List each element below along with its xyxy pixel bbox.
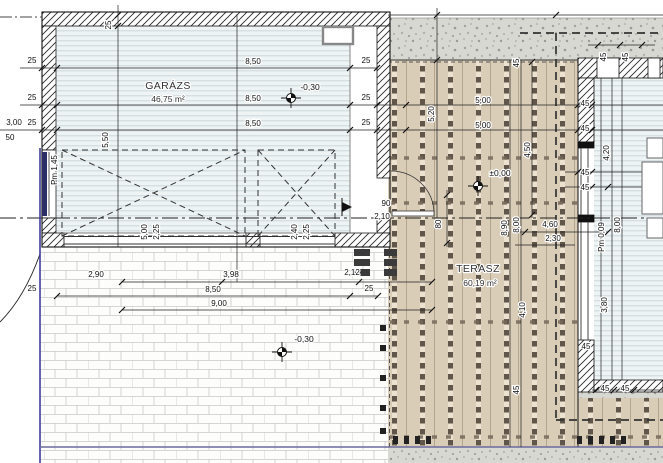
level-value-terrace: ±0,00 [489,168,510,178]
dimension-label: 2,10 [374,212,390,221]
dimension-label: 9,00 [211,299,227,308]
terrace-room-area: 60,19 m² [463,278,497,288]
dimension-label: 2,30 [545,234,561,243]
dimension-label: 3,00 [6,118,22,127]
level-value-garage: -0,30 [300,82,320,92]
dimension-label: 45 [601,384,610,393]
dimension-label: 4,10 [518,302,527,318]
dimension-label: 45 [581,168,590,177]
dimension-label: 8,50 [245,57,261,66]
dimension-label: 8,00 [512,217,521,233]
dimension-label: 2,12 [344,268,360,277]
garage-pier-right [335,233,390,247]
dimension-label: 25 [28,56,37,65]
terrace-deck [388,60,578,447]
dimension-label: 5,50 [101,132,110,148]
house-wall-sill [578,142,594,148]
dimension-label: 25 [28,93,37,102]
floor-plan-drawing: GARÁZS 46,75 m² TERASZ 60,19 m² -0,30 ±0… [0,0,663,463]
dimension-label: 8,50 [245,94,261,103]
door-leaf [392,211,434,216]
dimension-label: 25 [104,20,113,29]
dimension-label: 50 [6,133,15,142]
dimension-label: 5,00 [140,224,149,240]
dimension-label: 25 [28,118,37,127]
floor-plan-canvas: GARÁZS 46,75 m² TERASZ 60,19 m² -0,30 ±0… [0,0,663,463]
dimension-label: 45 [599,52,608,61]
dimension-label: 25 [28,284,37,293]
dimension-label: Pm 1,45 [50,155,59,185]
dimension-label: 45 [621,384,630,393]
dimension-label: 4,50 [523,142,532,158]
garage-floor [56,26,350,233]
dimension-label: Pm 0,09 [597,222,606,252]
chair [647,218,663,238]
dimension-label: 8,50 [205,285,221,294]
dimension-label: 45 [581,99,590,108]
dimension-label: 3,80 [600,297,609,313]
house-wall-mullion [578,215,594,222]
dimension-label: 25 [362,93,371,102]
dimension-label: 4,20 [602,145,611,161]
garage-vent-shaft [323,27,353,44]
terrace-room-label: TERASZ [456,263,500,275]
gravel-strip-bottom [388,447,663,463]
garage-wall-left-upper [42,26,56,150]
dimension-label: 45 [582,342,591,351]
dimension-label: 90 [382,199,391,208]
house-window-top-2 [648,58,660,78]
dimension-label: 45 [581,124,590,133]
dimension-label: 4,60 [542,220,558,229]
dimension-label: 2,40 [290,224,299,240]
dimension-label: 2,25 [152,224,161,240]
paving-area [40,247,388,463]
chair [647,138,663,158]
garage-room-label: GARÁZS [145,79,191,92]
dimension-label: 25 [362,56,371,65]
level-value-paving: -0,30 [294,334,314,344]
dimension-label: 5,00 [475,96,491,105]
dimension-label: 45 [581,183,590,192]
dimension-label: 80 [434,219,443,228]
garage-window-glazing [42,152,47,216]
dimension-label: 8,90 [500,220,509,236]
dimension-label: 25 [365,284,374,293]
garage-wall-right-upper [377,26,390,178]
garage-room-area: 46,75 m² [151,94,185,104]
dimension-label: 5,00 [475,121,491,130]
garage-pier-left [42,233,64,247]
dimension-label: 2,90 [88,270,104,279]
dimension-label: 25 [362,118,371,127]
garage-wall-top [42,12,390,26]
dimension-label: 45 [512,58,521,67]
table [642,162,663,214]
dimension-label: 2,25 [302,224,311,240]
dimension-label: 45 [512,385,521,394]
dimension-label: 8,50 [245,119,261,128]
garage-wall-left-lower [42,218,56,233]
dimension-label: 3,98 [223,270,239,279]
dimension-label: 8,00 [613,217,622,233]
dimension-label: 45 [621,52,630,61]
dimension-label: 5,20 [427,106,436,122]
